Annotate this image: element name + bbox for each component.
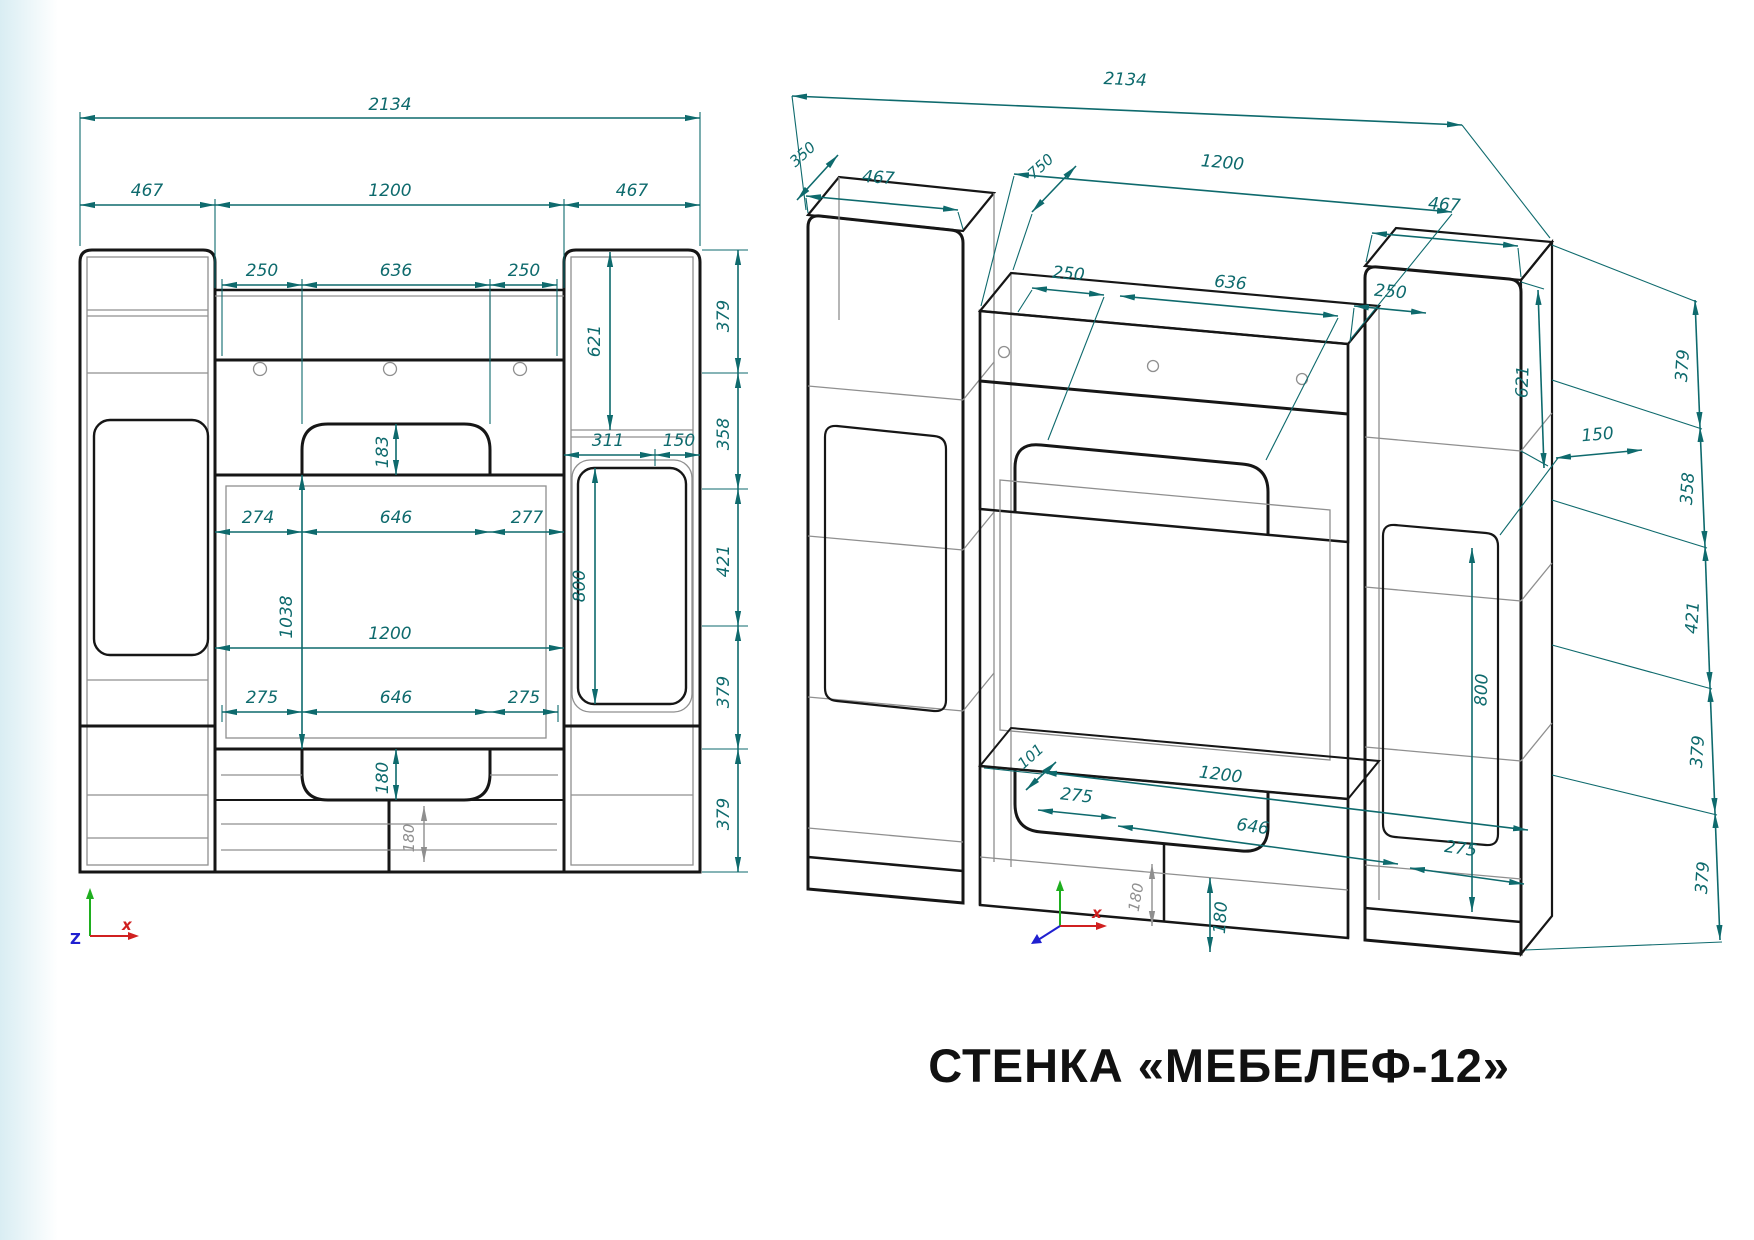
dim-front-opening-height: 1038	[277, 595, 297, 638]
dim-iso-right-width: 467	[1427, 194, 1461, 216]
dim-iso-opening-width: 1200	[1198, 762, 1243, 787]
dim-iso-stand-arch-height: 180	[1210, 901, 1232, 935]
dim-front-stand-niche: 646	[380, 688, 413, 708]
dim-iso-height-seg-2: 358	[1677, 472, 1699, 506]
dim-front-niche-right-inset: 277	[511, 508, 544, 528]
front-x-axis-label: x	[121, 916, 133, 934]
dim-front-niche-left-inset: 274	[242, 508, 274, 528]
iso-view-dimensions: 2134 350 467 750 1200 467 250 63	[786, 69, 1722, 952]
dim-front-right-width: 467	[616, 181, 649, 201]
dim-front-shelf-left-inset: 250	[246, 261, 278, 281]
perspective-view: 2134 350 467 750 1200 467 250 63	[786, 69, 1722, 954]
dim-iso-stand-niche: 646	[1235, 815, 1270, 839]
y-axis-arrow-icon	[86, 888, 94, 899]
front-view-dimensions: 2134 467 1200 467 250 636 250 183 621	[80, 95, 748, 872]
dim-front-right-edge-inset: 150	[663, 431, 695, 451]
dim-iso-base-offset: 101	[1014, 740, 1047, 773]
dim-front-niche-width: 646	[380, 508, 413, 528]
dim-front-height-seg-3: 421	[714, 545, 734, 577]
iso-furniture-drawing	[808, 177, 1552, 954]
dim-iso-door-height: 800	[1471, 673, 1492, 706]
dim-iso-center-width: 1200	[1200, 151, 1245, 175]
dim-iso-stand-right-inset: 275	[1443, 837, 1478, 861]
dim-front-stand-arch-height: 180	[373, 762, 393, 794]
dim-front-left-width: 467	[131, 181, 164, 201]
front-view: 2134 467 1200 467 250 636 250 183 621	[70, 95, 748, 948]
dim-iso-height-seg-5: 379	[1692, 861, 1714, 895]
blueprint-page: 2134 467 1200 467 250 636 250 183 621	[0, 0, 1754, 1240]
front-z-axis-label: Z	[70, 930, 81, 948]
front-view-axis-triad: x Z	[70, 888, 139, 948]
dim-front-stand-right-inset: 275	[508, 688, 540, 708]
drawing-title: СТЕНКА «МЕБЕЛЕФ-12»	[928, 1039, 1510, 1092]
dim-front-shelf-arch-height: 183	[373, 436, 393, 468]
y-axis-arrow-icon	[1056, 880, 1064, 891]
dim-front-opening-width: 1200	[368, 624, 411, 644]
dim-iso-depth: 350	[786, 138, 819, 171]
dim-front-base-height: 180	[400, 824, 418, 853]
dim-iso-height-seg-4: 379	[1687, 735, 1709, 769]
dim-front-height-seg-5: 379	[714, 798, 734, 830]
dim-iso-shelf-left-inset: 250	[1051, 263, 1085, 286]
dim-front-door-height: 800	[570, 570, 590, 602]
scan-edge-shading	[0, 0, 58, 1240]
z-axis-icon	[1038, 926, 1060, 940]
dim-iso-height-seg-3: 421	[1682, 601, 1704, 635]
dim-iso-left-width: 467	[861, 167, 895, 189]
dim-front-right-door-width: 311	[592, 431, 624, 451]
dim-iso-height-seg-1: 379	[1672, 349, 1694, 383]
dim-front-height-seg-1: 379	[714, 300, 734, 332]
dim-iso-right-edge-inset: 150	[1581, 424, 1615, 447]
dim-iso-overall-width: 2134	[1103, 69, 1147, 91]
dim-iso-base-height: 180	[1125, 881, 1148, 912]
dim-front-overall-width: 2134	[368, 95, 411, 115]
dim-front-height-seg-4: 379	[714, 676, 734, 708]
x-axis-arrow-icon	[1096, 922, 1107, 930]
dim-iso-shelf-niche: 636	[1213, 272, 1247, 295]
dim-front-height-seg-2: 358	[714, 418, 734, 451]
dim-iso-shelf-right-inset: 250	[1373, 281, 1407, 304]
iso-x-axis-label: x	[1091, 904, 1103, 922]
dim-front-stand-left-inset: 275	[246, 688, 278, 708]
dim-iso-stand-left-inset: 275	[1059, 784, 1093, 807]
blueprint-canvas: 2134 467 1200 467 250 636 250 183 621	[0, 0, 1754, 1240]
dim-front-right-top-height: 621	[585, 325, 605, 357]
dim-iso-right-top-height: 621	[1512, 365, 1533, 398]
dim-front-shelf-right-inset: 250	[508, 261, 540, 281]
dim-front-shelf-niche: 636	[380, 261, 413, 281]
dim-front-center-width: 1200	[368, 181, 411, 201]
